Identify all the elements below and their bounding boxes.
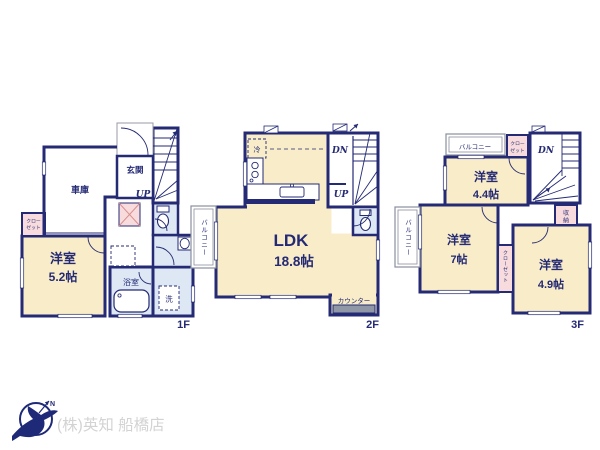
floor-3f: バルコニー クロー ゼット DN 洋室 4.4帖 収 納 洋室 7帖 洋室 4.…	[395, 126, 592, 331]
floor-1f: 車庫 玄関 UP クロー ゼット 洋室 5.2帖 浴室 洗 1F	[20, 123, 194, 331]
f2-ldk-name: LDK	[274, 231, 310, 250]
f3-room-4-9-name: 洋室	[539, 257, 563, 272]
stove-icon	[247, 158, 263, 184]
bathtub-icon	[114, 290, 149, 312]
kitchen-sink-icon	[247, 184, 319, 200]
f3-room-4-9-size: 4.9帖	[538, 277, 564, 291]
f2-ldk-size: 18.8帖	[274, 253, 314, 269]
f2-up-label: UP	[334, 190, 349, 200]
f3-closet-top-label-2: ゼット	[510, 147, 525, 154]
f1-room-name: 洋室	[50, 251, 76, 266]
company-logo: N	[12, 401, 58, 441]
f3-vent	[532, 126, 545, 132]
logo-north-letter: N	[50, 401, 55, 408]
sink-icon	[178, 237, 192, 250]
f3-dn-label: DN	[537, 146, 555, 156]
f2-corridor	[332, 209, 352, 234]
f3-room-4-4-name: 洋室	[474, 169, 498, 184]
floorplan-svg: 車庫 玄関 UP クロー ゼット 洋室 5.2帖 浴室 洗 1F	[0, 0, 600, 450]
f3-room-7-name: 洋室	[447, 232, 471, 247]
f1-shoe-cabinet	[119, 203, 140, 226]
f3-balcony-top-label: バルコニー	[459, 143, 491, 151]
f3-storage-label-1: 収	[563, 210, 569, 217]
f3-storage-label-2: 納	[563, 217, 569, 225]
f1-closet-label-1: クロー	[26, 219, 41, 225]
f2-dn-label: DN	[331, 146, 349, 156]
f1-bath-label: 浴室	[123, 277, 139, 287]
f3-floor-label: 3F	[571, 319, 584, 331]
f2-fridge-label: 冷	[254, 145, 261, 154]
f1-entrance-label: 玄関	[126, 165, 143, 175]
f3-closet-top-label-1: クロー	[510, 141, 525, 147]
f2-counter-bar	[333, 305, 375, 313]
f1-hall-storage	[111, 246, 135, 266]
company-name: (株)英知 船橋店	[57, 416, 165, 434]
f3-room-4-4-size: 4.4帖	[473, 187, 499, 201]
floor-2f: 冷 DN UP LDK 18.8帖 カウンター 2F	[191, 124, 380, 331]
floorplan-canvas: 車庫 玄関 UP クロー ゼット 洋室 5.2帖 浴室 洗 1F	[0, 0, 600, 450]
f1-floor-label: 1F	[177, 319, 190, 331]
f3-room-7-size: 7帖	[450, 252, 467, 266]
f1-garage-label: 車庫	[71, 184, 89, 195]
f1-closet-label-2: ゼット	[26, 224, 41, 231]
f3-balcony-left-label: バルコニー	[403, 219, 410, 257]
f2-floor-label: 2F	[366, 319, 379, 331]
f2-counter-label: カウンター	[338, 296, 371, 305]
f2-counter-wall	[245, 199, 315, 204]
f1-laundry-label: 洗	[165, 294, 173, 304]
f1-room-size: 5.2帖	[49, 269, 78, 284]
f2-balcony-label: バルコニー	[199, 219, 206, 257]
toilet-icon	[157, 206, 169, 228]
f3-closet-vertical-label: クローゼット	[502, 250, 507, 283]
f1-up-label: UP	[136, 190, 151, 200]
f1-closet	[22, 213, 45, 236]
